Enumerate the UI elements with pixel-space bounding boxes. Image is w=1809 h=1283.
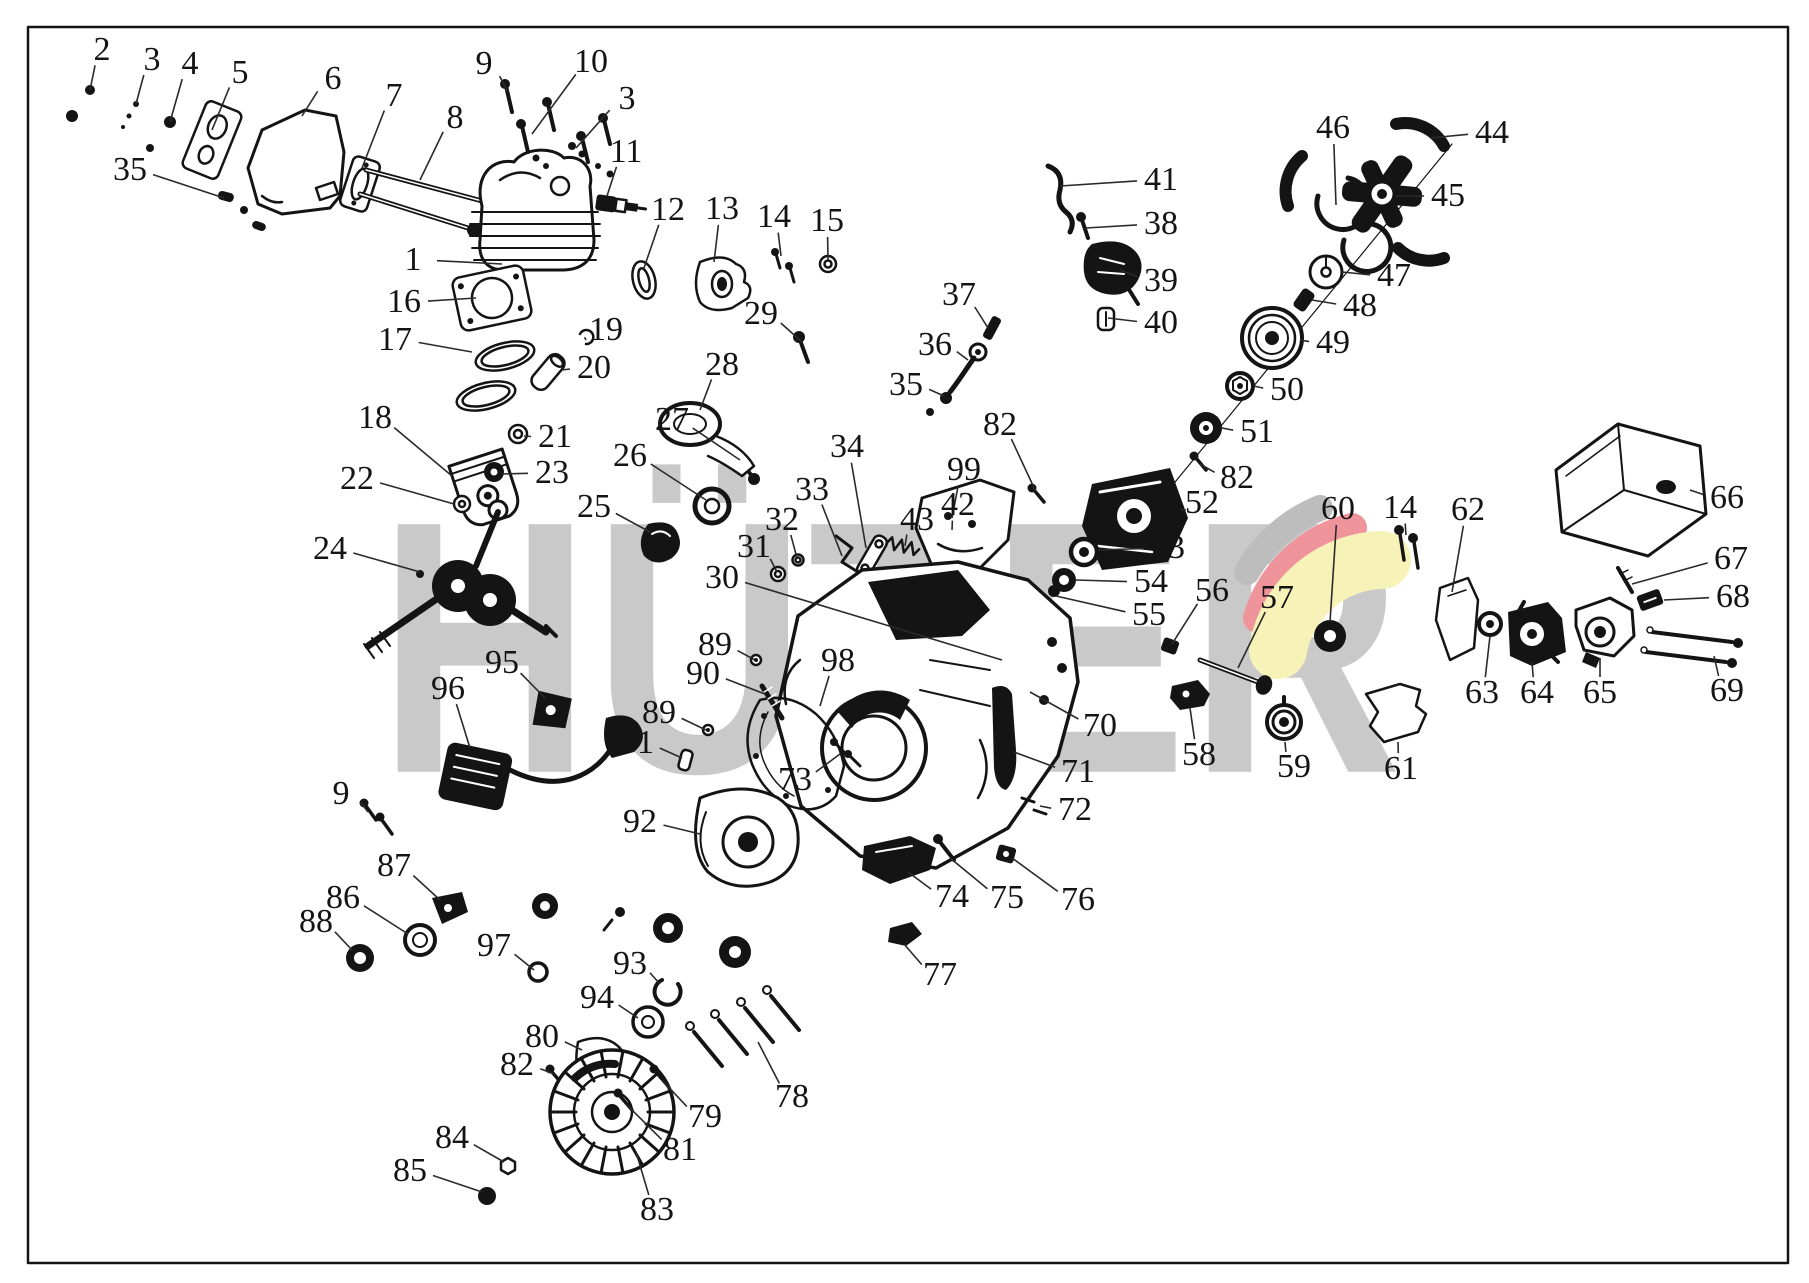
part-callout-48-49: 48 [1343,287,1377,325]
part-callout-57-61: 57 [1260,579,1294,617]
part-callout-56-60: 56 [1195,572,1229,610]
part-callout-22-24: 22 [340,460,374,498]
part-callout-65-67: 65 [1583,674,1617,712]
part-callout-45-47: 45 [1431,177,1465,215]
part-callout-77-105: 77 [923,956,957,994]
part-callout-62-64: 62 [1451,491,1485,529]
part-callout-49-50: 49 [1316,324,1350,362]
part-callout-7-5: 7 [386,77,403,115]
part-callout-18-21: 18 [358,399,392,437]
part-callout-61-77: 61 [1384,750,1418,788]
part-callout-42-37: 42 [941,486,975,524]
part-callout-35-11: 35 [113,151,147,189]
diagram-page: { "watermark": { "text": "HÜTER", "color… [0,0,1809,1283]
part-callout-51-52: 51 [1240,413,1274,451]
part-callout-41-41: 41 [1144,161,1178,199]
part-callout-72-74: 72 [1058,791,1092,829]
part-callout-83-98: 83 [640,1191,674,1229]
callout-layer: 2345678910311351213141511617192018212322… [0,0,1809,1283]
part-callout-68-70: 68 [1716,578,1750,616]
part-callout-3-9: 3 [619,80,636,118]
part-callout-53-57: 53 [1151,529,1185,567]
part-callout-30-35: 30 [705,559,739,597]
part-callout-39-43: 39 [1144,262,1178,300]
part-callout-26-26: 26 [613,437,647,475]
part-callout-94-93: 94 [580,979,614,1017]
part-callout-29-29: 29 [744,295,778,333]
part-callout-63-65: 63 [1465,674,1499,712]
part-callout-31-34: 31 [737,528,771,566]
part-callout-35-40: 35 [889,366,923,404]
part-callout-2-0: 2 [94,31,111,69]
part-callout-90-79: 90 [686,655,720,693]
part-callout-36-39: 36 [918,326,952,364]
part-callout-52-56: 52 [1185,484,1219,522]
part-callout-67-69: 67 [1714,540,1748,578]
part-callout-20-20: 20 [577,349,611,387]
part-callout-69-71: 69 [1710,672,1744,710]
part-callout-66-68: 66 [1710,479,1744,517]
part-callout-70-72: 70 [1083,707,1117,745]
part-callout-33-32: 33 [795,471,829,509]
part-callout-82-95: 82 [500,1046,534,1084]
part-callout-47-48: 47 [1377,257,1411,295]
part-callout-12-12: 12 [651,191,685,229]
part-callout-4-2: 4 [182,45,199,83]
part-callout-8-6: 8 [447,99,464,137]
part-callout-14-14: 14 [757,198,791,236]
part-callout-75-103: 75 [990,879,1024,917]
part-callout-81-100: 81 [663,1131,697,1169]
part-callout-88-90: 88 [299,903,333,941]
part-callout-58-75: 58 [1182,736,1216,774]
part-callout-74-102: 74 [935,878,969,916]
part-callout-73-83: 73 [778,761,812,799]
part-callout-40-44: 40 [1144,304,1178,342]
part-callout-6-4: 6 [325,60,342,98]
part-callout-97-91: 97 [477,927,511,965]
part-callout-98-82: 98 [821,642,855,680]
part-callout-55-59: 55 [1132,596,1166,634]
part-callout-95-85: 95 [485,644,519,682]
part-callout-78-101: 78 [775,1078,809,1116]
part-callout-34-31: 34 [830,428,864,466]
part-callout-9-87: 9 [333,775,350,813]
part-callout-85-97: 85 [393,1152,427,1190]
part-callout-10-8: 10 [574,43,608,81]
part-callout-76-104: 76 [1061,881,1095,919]
part-callout-15-15: 15 [810,202,844,240]
part-callout-24-30: 24 [313,530,347,568]
part-callout-21-22: 21 [538,418,572,456]
part-callout-46-45: 46 [1316,109,1350,147]
part-callout-84-96: 84 [435,1119,469,1157]
part-callout-91-81: 91 [620,724,654,762]
part-callout-93-92: 93 [613,945,647,983]
part-callout-87-88: 87 [377,847,411,885]
part-callout-17-18: 17 [378,321,412,359]
part-callout-59-76: 59 [1277,748,1311,786]
part-callout-50-51: 50 [1270,371,1304,409]
part-callout-16-17: 16 [387,283,421,321]
part-callout-19-19: 19 [589,311,623,349]
part-callout-60-62: 60 [1321,490,1355,528]
part-callout-64-66: 64 [1520,674,1554,712]
part-callout-28-28: 28 [705,346,739,384]
part-callout-43-36: 43 [900,501,934,539]
part-callout-82-53: 82 [983,406,1017,444]
part-callout-71-73: 71 [1061,753,1095,791]
part-callout-38-42: 38 [1144,205,1178,243]
part-callout-44-46: 44 [1475,114,1509,152]
part-callout-92-84: 92 [623,803,657,841]
part-callout-37-38: 37 [942,276,976,314]
part-callout-13-13: 13 [705,190,739,228]
part-callout-27-27: 27 [655,401,689,439]
part-callout-1-16: 1 [405,241,422,279]
part-callout-11-10: 11 [610,133,643,171]
part-callout-9-7: 9 [476,45,493,83]
part-callout-3-1: 3 [144,41,161,79]
part-callout-14-63: 14 [1383,489,1417,527]
part-callout-25-25: 25 [577,488,611,526]
part-callout-82-55: 82 [1220,459,1254,497]
part-callout-5-3: 5 [232,54,249,92]
part-callout-99-54: 99 [947,451,981,489]
part-callout-23-23: 23 [535,454,569,492]
part-callout-96-86: 96 [431,670,465,708]
